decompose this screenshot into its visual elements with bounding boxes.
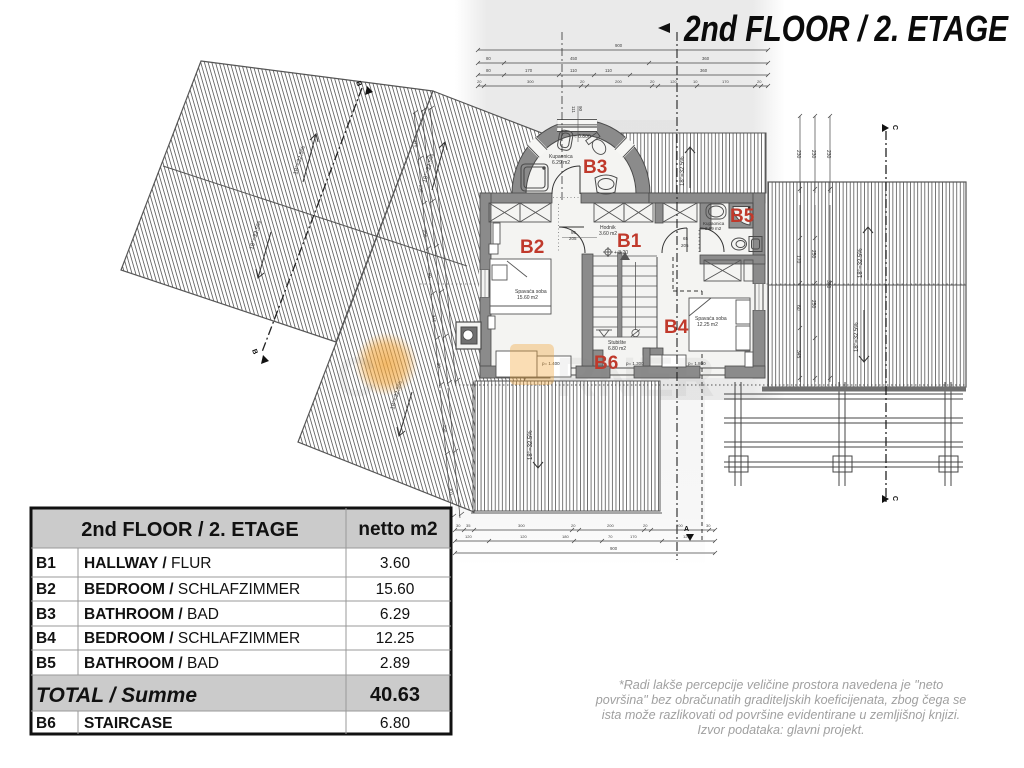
svg-text:250: 250 xyxy=(810,250,816,259)
svg-text:65: 65 xyxy=(683,236,689,241)
svg-text:B5: B5 xyxy=(730,206,755,227)
svg-text:6.80: 6.80 xyxy=(380,715,411,732)
svg-text:300: 300 xyxy=(518,523,525,528)
svg-text:345: 345 xyxy=(795,350,801,359)
svg-text:12.25: 12.25 xyxy=(376,630,415,647)
svg-text:površina" bez obračunatih grad: površina" bez obračunatih graditeljskih … xyxy=(595,693,967,707)
svg-text:111: 111 xyxy=(571,106,576,113)
svg-text:20: 20 xyxy=(571,523,576,528)
svg-text:B1: B1 xyxy=(36,555,56,572)
svg-text:20: 20 xyxy=(477,79,482,84)
svg-text:B6: B6 xyxy=(36,715,56,732)
svg-text:110: 110 xyxy=(570,68,577,73)
svg-text:180: 180 xyxy=(562,534,569,539)
svg-text:BEDROOM / SCHLAFZIMMER: BEDROOM / SCHLAFZIMMER xyxy=(84,630,300,647)
svg-text:60: 60 xyxy=(795,305,801,311)
svg-text:205: 205 xyxy=(569,236,577,241)
svg-text:BATHROOM / BAD: BATHROOM / BAD xyxy=(84,606,219,623)
svg-text:BATHROOM / BAD: BATHROOM / BAD xyxy=(84,655,219,672)
svg-text:300: 300 xyxy=(527,79,534,84)
svg-text:RNER: RNER xyxy=(556,345,715,408)
svg-text:80: 80 xyxy=(486,56,491,61)
svg-text:70: 70 xyxy=(608,534,613,539)
svg-text:15.60 m2: 15.60 m2 xyxy=(517,295,538,301)
svg-text:360: 360 xyxy=(700,68,708,73)
svg-text:B1: B1 xyxy=(617,231,642,252)
svg-text:95: 95 xyxy=(571,230,577,235)
svg-text:B2: B2 xyxy=(520,237,544,258)
svg-text:20: 20 xyxy=(757,79,762,84)
svg-text:200: 200 xyxy=(607,523,614,528)
svg-text:250: 250 xyxy=(810,300,816,309)
svg-text:≈ 0.800: ≈ 0.800 xyxy=(574,134,591,140)
svg-text:netto m2: netto m2 xyxy=(358,519,437,540)
svg-text:2nd FLOOR / 2. ETAGE: 2nd FLOOR / 2. ETAGE xyxy=(81,519,298,541)
svg-text:90: 90 xyxy=(578,106,583,112)
svg-text:2nd FLOOR / 2. ETAGE: 2nd FLOOR / 2. ETAGE xyxy=(683,8,1009,49)
svg-text:10: 10 xyxy=(693,79,698,84)
svg-text:15.60: 15.60 xyxy=(376,581,415,598)
svg-text:18°=32.5%: 18°=32.5% xyxy=(858,248,864,278)
svg-text:B4: B4 xyxy=(664,317,689,338)
svg-text:TOTAL / Summe: TOTAL / Summe xyxy=(36,684,197,707)
svg-text:3.60 m2: 3.60 m2 xyxy=(599,231,617,237)
svg-text:2.89 m2: 2.89 m2 xyxy=(705,226,722,231)
svg-text:ista može razlikovati od površ: ista može razlikovati od površine eviden… xyxy=(602,708,960,722)
svg-text:B5: B5 xyxy=(36,655,56,672)
svg-text:C: C xyxy=(891,125,898,130)
svg-text:HALLWAY / FLUR: HALLWAY / FLUR xyxy=(84,555,211,572)
svg-text:250: 250 xyxy=(422,230,428,238)
svg-text:120: 120 xyxy=(465,534,472,539)
svg-text:6.29: 6.29 xyxy=(380,606,410,623)
svg-text:380: 380 xyxy=(825,280,831,289)
svg-text:301: 301 xyxy=(448,488,454,496)
svg-text:*Radi lakše percepcije veličin: *Radi lakše percepcije veličine prostora… xyxy=(619,678,943,692)
svg-text:B3: B3 xyxy=(583,157,607,178)
svg-text:B4: B4 xyxy=(36,630,56,647)
svg-text:18°=32.5%: 18°=32.5% xyxy=(528,430,534,460)
svg-text:120: 120 xyxy=(520,534,527,539)
svg-text:250: 250 xyxy=(418,185,424,193)
svg-text:STAIRCASE: STAIRCASE xyxy=(84,715,172,732)
svg-text:230: 230 xyxy=(825,150,831,159)
svg-text:345: 345 xyxy=(431,315,437,323)
svg-text:12.25 m2: 12.25 m2 xyxy=(697,322,718,328)
svg-text:170: 170 xyxy=(630,534,637,539)
svg-text:20: 20 xyxy=(650,79,655,84)
svg-text:170: 170 xyxy=(722,79,729,84)
svg-text:18°=32.5%: 18°=32.5% xyxy=(854,322,860,352)
svg-text:170: 170 xyxy=(795,255,801,264)
svg-text:35: 35 xyxy=(466,523,471,528)
svg-text:C: C xyxy=(336,345,376,408)
svg-text:230: 230 xyxy=(795,150,801,159)
svg-text:230: 230 xyxy=(810,150,816,159)
svg-text:80: 80 xyxy=(486,68,491,73)
svg-text:205: 205 xyxy=(681,243,689,248)
svg-text:Izvor podataka: glavni projekt: Izvor podataka: glavni projekt. xyxy=(697,723,864,737)
svg-text:B3: B3 xyxy=(36,606,56,623)
svg-text:2.89: 2.89 xyxy=(380,655,410,672)
svg-text:200: 200 xyxy=(615,79,622,84)
svg-text:B2: B2 xyxy=(36,581,56,598)
svg-text:360: 360 xyxy=(702,56,710,61)
svg-text:+ 3.20: + 3.20 xyxy=(614,250,628,256)
svg-text:BEDROOM / SCHLAFZIMMER: BEDROOM / SCHLAFZIMMER xyxy=(84,581,300,598)
svg-text:900: 900 xyxy=(610,546,618,551)
svg-text:30: 30 xyxy=(456,523,461,528)
svg-text:450: 450 xyxy=(570,56,578,61)
svg-text:170: 170 xyxy=(413,140,419,148)
svg-text:3.60: 3.60 xyxy=(380,555,411,572)
svg-text:20: 20 xyxy=(580,79,585,84)
svg-text:18°=32.5%: 18°=32.5% xyxy=(680,156,686,186)
svg-text:170: 170 xyxy=(525,68,533,73)
svg-text:40.63: 40.63 xyxy=(370,684,420,706)
svg-text:A: A xyxy=(684,526,689,533)
svg-text:C: C xyxy=(891,496,898,501)
svg-text:110: 110 xyxy=(605,68,612,73)
svg-text:30: 30 xyxy=(706,523,711,528)
svg-text:120: 120 xyxy=(670,79,677,84)
svg-text:900: 900 xyxy=(615,43,623,48)
svg-text:20: 20 xyxy=(643,523,648,528)
svg-text:250: 250 xyxy=(442,425,448,433)
svg-text:6.29 m2: 6.29 m2 xyxy=(552,160,570,166)
svg-text:200: 200 xyxy=(676,523,683,528)
